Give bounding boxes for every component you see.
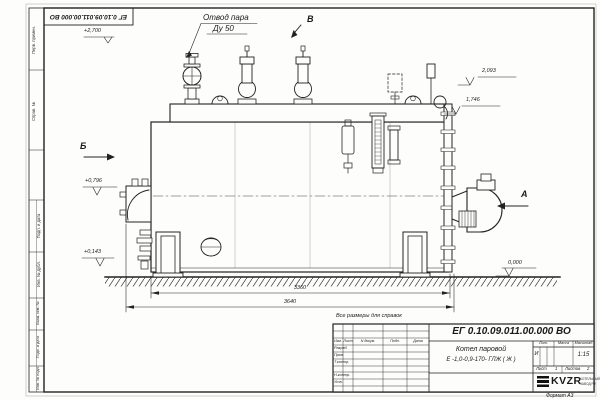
margin-stamp-sprav-no: Справ. №	[32, 75, 36, 148]
burner	[452, 174, 502, 232]
margin-stamp-podp-data-2: Подп. и дата	[37, 330, 41, 364]
steam-outlet-label-line2: Ду 50	[213, 25, 234, 33]
front-stubs	[137, 230, 152, 269]
kvzr-logo-text: KVZR	[551, 376, 582, 387]
margin-stamp-inv-podl: Инв. № подл.	[37, 366, 41, 390]
titleblock-row-nkontr: Н.контр.	[334, 374, 350, 378]
titleblock-row-prov: Пров.	[334, 354, 344, 358]
dimension-3640: 3640	[278, 300, 302, 306]
manhole	[201, 238, 221, 256]
boiler-drawing	[0, 0, 600, 400]
drawing-sheet: ЕГ 0.10.09.011.00.000 ВО Отвод пара Ду 5…	[0, 0, 600, 400]
titleblock-sheet-label: Лист	[536, 367, 547, 371]
elevation-2093: 2,093	[482, 69, 496, 75]
titleblock-sheets-label: Листов	[565, 367, 580, 371]
titleblock-h-lit: Лит.	[533, 342, 554, 346]
margin-stamp-perv-primen: Перв. примен.	[32, 12, 36, 68]
steam-outlet-valve	[183, 54, 201, 105]
top-stamp-number: ЕГ 0.10.09.011.00.000 ВО	[44, 9, 133, 24]
titleblock-h-mass: Масса	[554, 342, 573, 346]
titleblock-sheet-value: 1	[555, 367, 557, 371]
margin-stamp-vzam-inv: Взам. инв. №	[37, 298, 41, 328]
titleblock-h-list: Лист	[343, 340, 353, 344]
view-marker-v: В	[307, 15, 314, 24]
titleblock-row-razrab: Разраб.	[334, 347, 348, 351]
titleblock-h-sign: Подп.	[383, 340, 407, 344]
view-marker-a: А	[521, 190, 528, 199]
titleblock-doc-number: ЕГ 0.10.09.011.00.000 ВО	[429, 327, 594, 337]
titleblock-name-line2: Е -1,0-0,9-170- ГЛЖ ( Ж )	[429, 357, 533, 363]
titleblock-h-doc: N докум.	[353, 340, 383, 344]
margin-stamp-inv-dubl: Инв. № дубл.	[37, 252, 41, 296]
view-marker-b: Б	[80, 142, 86, 151]
kvzr-logo-icon	[537, 376, 549, 388]
titleblock-name-line1: Котел паровой	[429, 346, 533, 353]
elevation-plus0143: +0,143	[84, 250, 101, 256]
elevation-1746: 1,746	[466, 98, 480, 104]
dimension-3360: 3360	[288, 286, 312, 292]
ground-hatch	[105, 278, 557, 287]
elevation-plus0796: +0,796	[85, 179, 102, 185]
titleblock-h-izm: Изм.	[333, 340, 343, 344]
kvzr-logo-sub2: ЗАВОД РФ	[580, 383, 596, 386]
titleblock-sheets-value: 2	[587, 367, 589, 371]
elevation-0000: 0,000	[508, 261, 522, 267]
safety-valve-1	[238, 46, 256, 104]
margin-stamp-podp-data-1: Подп. и дата	[37, 202, 41, 250]
titleblock-row-tkontr: Т.контр.	[334, 361, 349, 365]
front-elbow	[120, 179, 151, 222]
elevation-plus2700: +2,700	[84, 29, 101, 35]
titleblock-lit-value: И	[533, 352, 540, 358]
steam-outlet-label-line1: Отвод пара	[203, 14, 249, 22]
reference-note: Все размеры для справок	[336, 314, 402, 320]
titleblock-scale-value: 1:15	[573, 352, 594, 358]
titleblock-h-scale: Масштаб	[573, 342, 594, 346]
titleblock-h-date: Дата	[407, 340, 429, 344]
titleblock-row-utv: Утв.	[334, 381, 343, 385]
kvzr-logo-sub1: КОТЕЛЬНЫЙ	[580, 378, 600, 381]
format-label: Формат А3	[546, 394, 573, 399]
safety-valve-2	[294, 46, 312, 104]
